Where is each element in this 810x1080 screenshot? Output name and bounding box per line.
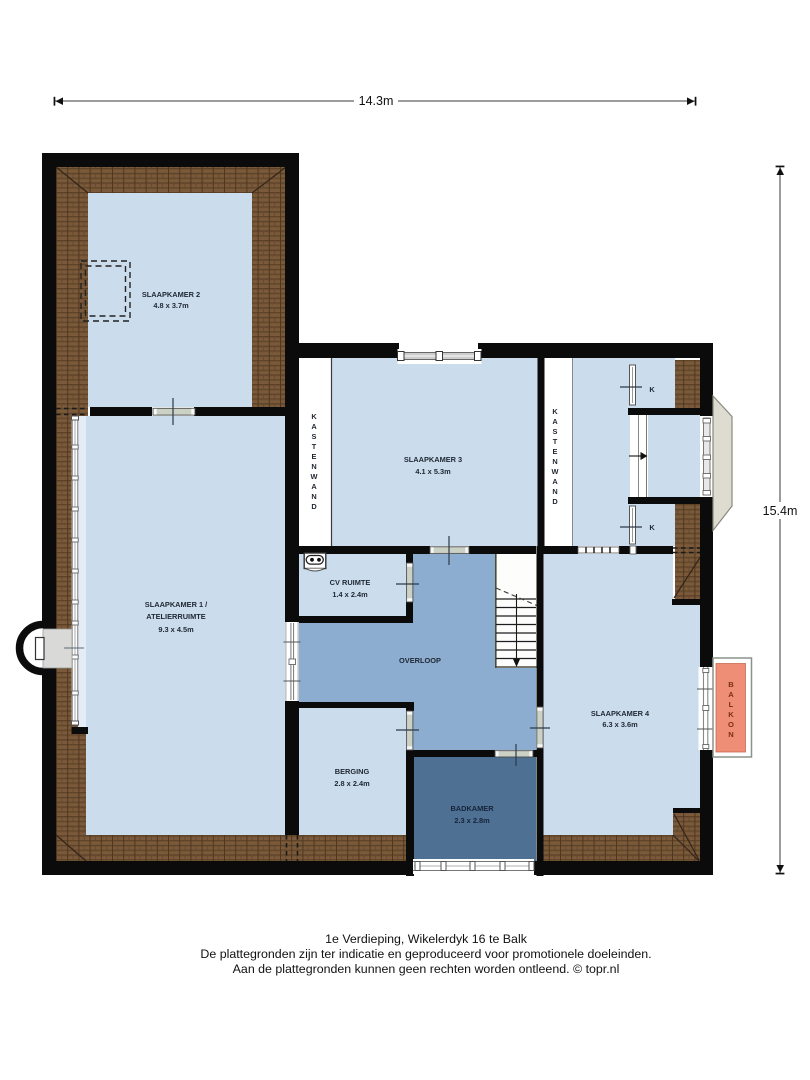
svg-text:S: S — [553, 427, 558, 436]
svg-text:T: T — [553, 437, 558, 446]
svg-text:N: N — [552, 457, 557, 466]
svg-text:B: B — [728, 680, 734, 689]
svg-text:CV RUIMTE: CV RUIMTE — [330, 578, 371, 587]
svg-text:14.3m: 14.3m — [359, 94, 394, 108]
svg-text:S: S — [312, 432, 317, 441]
svg-text:N: N — [311, 492, 316, 501]
svg-text:SLAAPKAMER 3: SLAAPKAMER 3 — [404, 455, 462, 464]
svg-text:4.1 x 5.3m: 4.1 x 5.3m — [415, 467, 451, 476]
svg-text:De plattegronden zijn ter indi: De plattegronden zijn ter indicatie en g… — [200, 947, 651, 961]
svg-text:E: E — [312, 452, 317, 461]
svg-text:D: D — [311, 502, 317, 511]
svg-text:K: K — [649, 523, 655, 532]
svg-text:N: N — [728, 730, 733, 739]
svg-text:A: A — [311, 422, 317, 431]
svg-text:K: K — [649, 385, 655, 394]
svg-text:E: E — [553, 447, 558, 456]
svg-text:Aan de plattegronden kunnen ge: Aan de plattegronden kunnen geen rechten… — [233, 962, 620, 976]
svg-text:BERGING: BERGING — [335, 767, 370, 776]
svg-text:T: T — [312, 442, 317, 451]
svg-text:L: L — [729, 700, 734, 709]
svg-text:A: A — [311, 482, 317, 491]
svg-text:2.3 x 2.8m: 2.3 x 2.8m — [454, 816, 490, 825]
svg-text:K: K — [728, 710, 734, 719]
svg-text:N: N — [552, 487, 557, 496]
svg-text:D: D — [552, 497, 558, 506]
svg-text:K: K — [311, 412, 317, 421]
svg-text:1.4 x 2.4m: 1.4 x 2.4m — [332, 590, 368, 599]
svg-text:15.4m: 15.4m — [763, 504, 798, 518]
svg-text:N: N — [311, 462, 316, 471]
svg-text:BADKAMER: BADKAMER — [450, 804, 494, 813]
svg-text:6.3 x 3.6m: 6.3 x 3.6m — [602, 720, 638, 729]
svg-text:SLAAPKAMER 2: SLAAPKAMER 2 — [142, 290, 200, 299]
svg-text:W: W — [311, 472, 318, 481]
svg-text:O: O — [728, 720, 734, 729]
svg-text:SLAAPKAMER 4: SLAAPKAMER 4 — [591, 709, 650, 718]
svg-text:OVERLOOP: OVERLOOP — [399, 656, 441, 665]
svg-text:K: K — [552, 407, 558, 416]
svg-text:A: A — [552, 477, 558, 486]
svg-text:A: A — [728, 690, 734, 699]
svg-text:1e Verdieping, Wikelerdyk 16 t: 1e Verdieping, Wikelerdyk 16 te Balk — [325, 932, 528, 946]
svg-text:W: W — [552, 467, 559, 476]
svg-text:9.3 x 4.5m: 9.3 x 4.5m — [158, 625, 194, 634]
svg-text:2.8 x 2.4m: 2.8 x 2.4m — [334, 779, 370, 788]
svg-text:ATELIERRUIMTE: ATELIERRUIMTE — [146, 612, 205, 621]
svg-text:4.8 x 3.7m: 4.8 x 3.7m — [153, 301, 189, 310]
svg-text:A: A — [552, 417, 558, 426]
svg-text:SLAAPKAMER 1 /: SLAAPKAMER 1 / — [145, 600, 207, 609]
